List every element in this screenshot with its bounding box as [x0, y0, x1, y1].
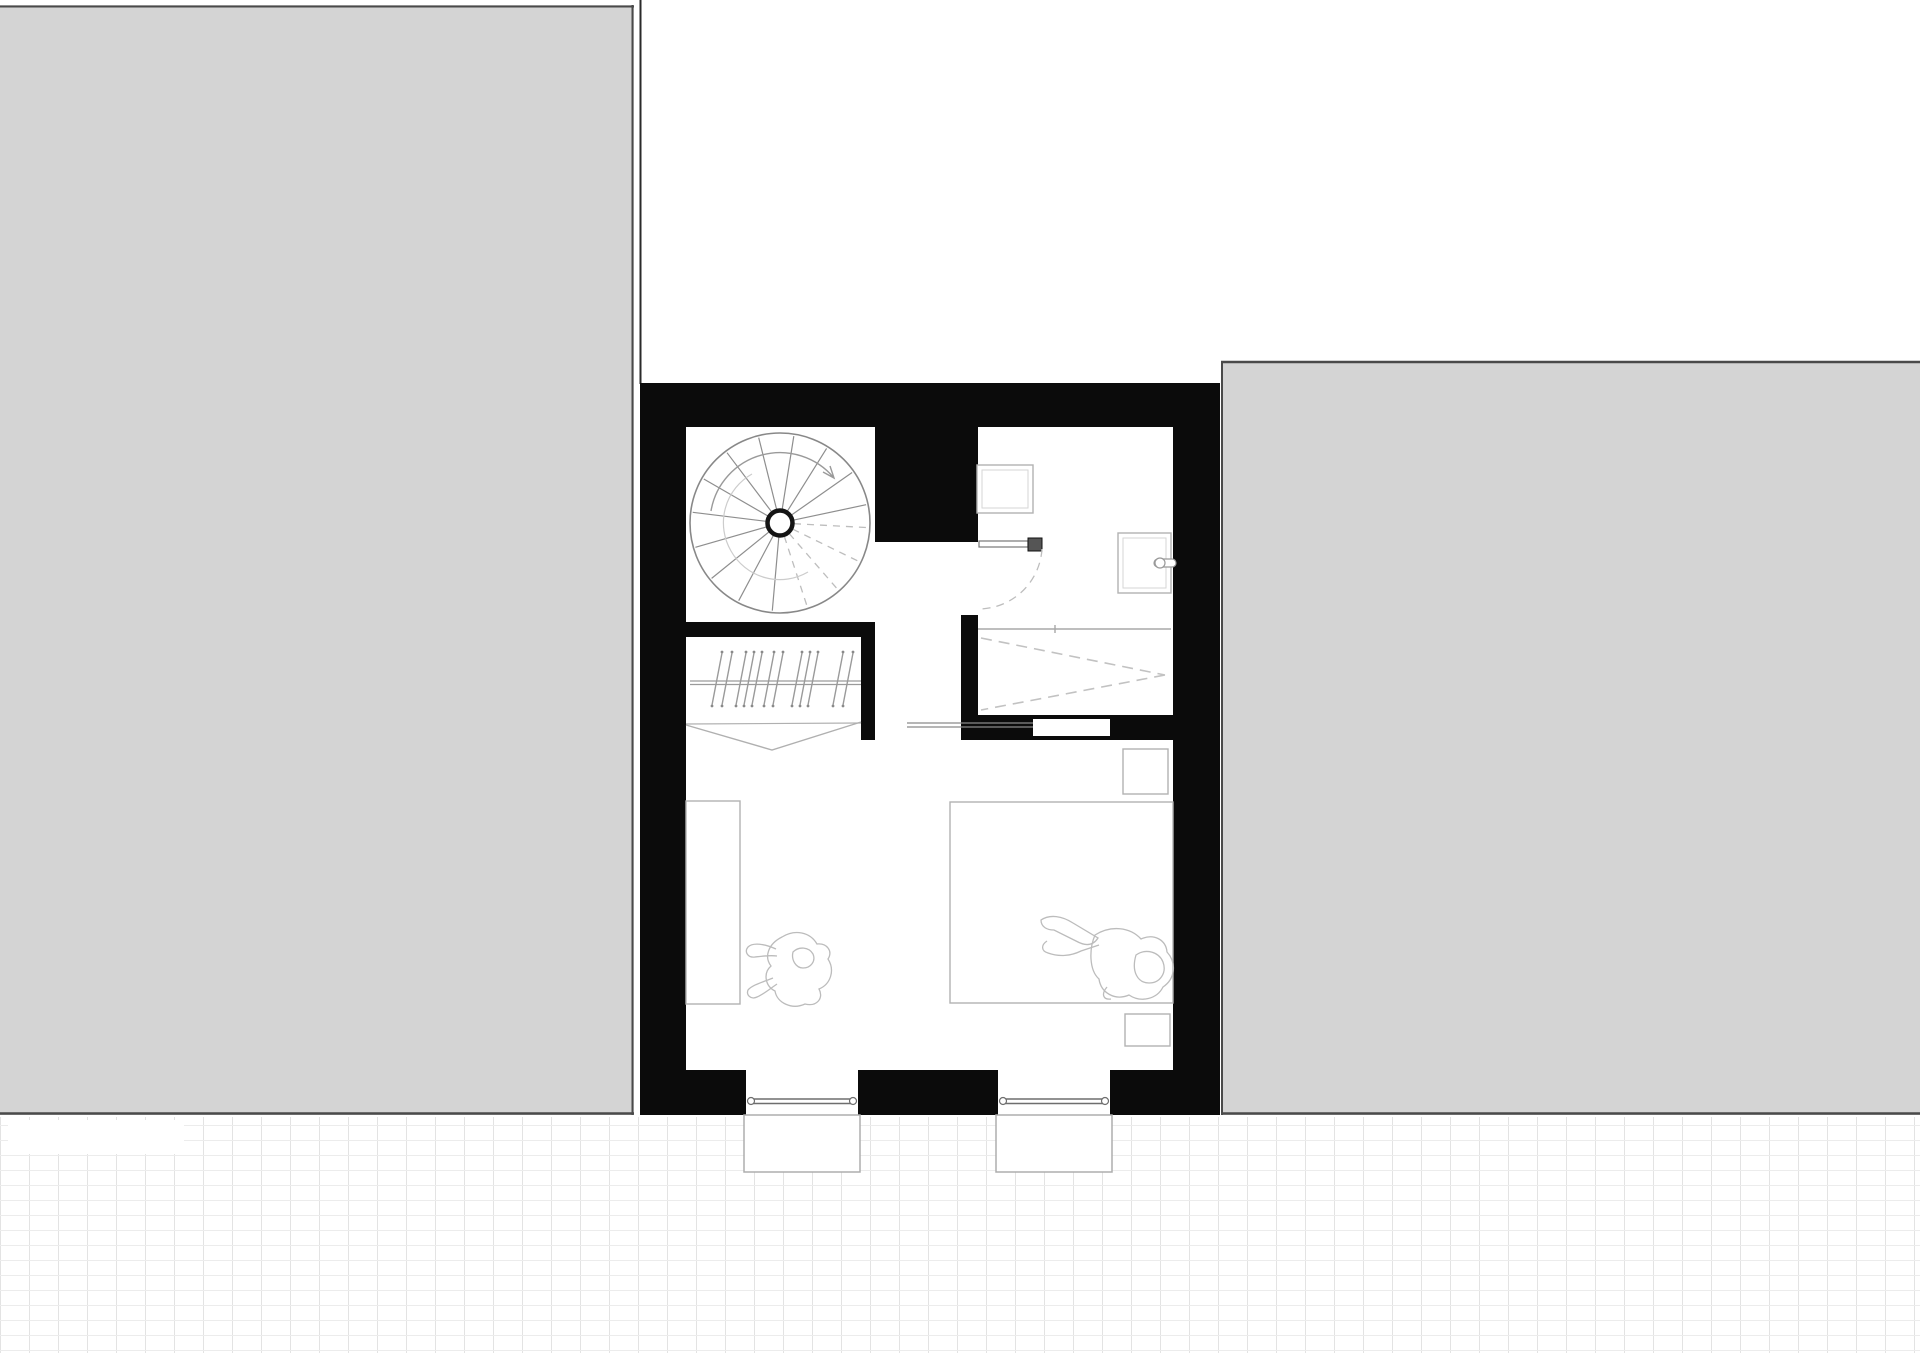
window-1-sill [744, 1115, 860, 1172]
washbasin-tap-knob [1155, 558, 1165, 568]
window-2-glass-end-left [1000, 1098, 1007, 1105]
window-1-glass-end-left [748, 1098, 755, 1105]
neighbor-right-building [1221, 361, 1920, 1115]
room-corridor [875, 542, 961, 740]
window-2-glass-end-right [1102, 1098, 1109, 1105]
bathroom-door-handle [1028, 538, 1042, 551]
double-bed [950, 802, 1173, 1003]
spiral-stair-newel [768, 511, 793, 536]
window-2-sill [996, 1115, 1112, 1172]
paving-blank-patch [8, 1120, 184, 1154]
floor-plan-page [0, 0, 1920, 1353]
window-1-glass-end-right [850, 1098, 857, 1105]
paving-area [0, 1117, 1920, 1353]
bathroom-door-leaf [979, 541, 1028, 547]
sliding-door-slot [1033, 719, 1110, 736]
nightstand-bottom [1125, 1014, 1170, 1046]
window-2-opening [998, 1070, 1110, 1115]
nightstand-top [1123, 749, 1168, 794]
bedroom-desk [686, 801, 740, 1004]
bathroom-door-opening [961, 542, 978, 615]
bathroom-fixture [977, 465, 1033, 513]
neighbor-left-building [0, 5, 634, 1115]
floorplan-svg [0, 0, 1920, 1353]
window-1-opening [746, 1070, 858, 1115]
